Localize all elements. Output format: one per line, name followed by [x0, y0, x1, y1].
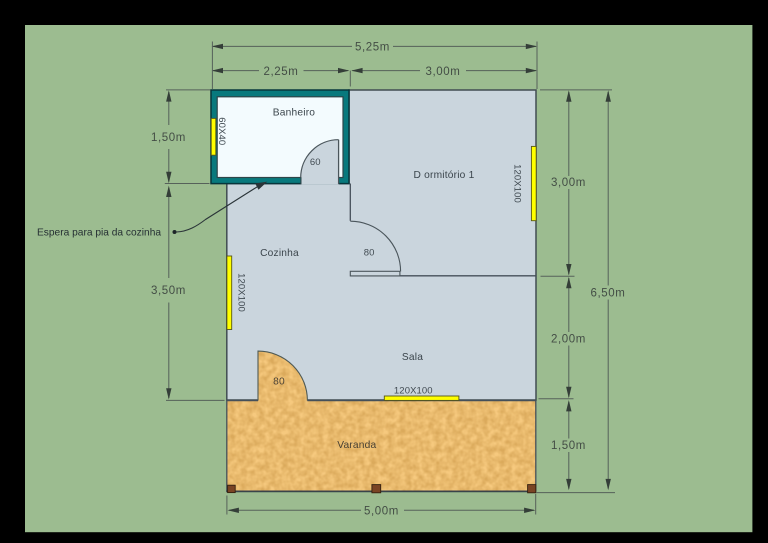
svg-text:1,50m: 1,50m [151, 132, 186, 144]
svg-text:120X100: 120X100 [511, 164, 522, 203]
svg-text:D ormitório 1: D ormitório 1 [414, 170, 475, 181]
svg-text:3,50m: 3,50m [151, 285, 186, 297]
svg-text:80: 80 [364, 248, 375, 259]
svg-text:3,00m: 3,00m [551, 177, 586, 189]
svg-text:Espera para pia da cozinha: Espera para pia da cozinha [37, 227, 161, 238]
svg-text:2,00m: 2,00m [551, 334, 586, 346]
svg-text:5,00m: 5,00m [364, 506, 399, 518]
svg-text:5,25m: 5,25m [355, 42, 390, 54]
svg-text:Cozinha: Cozinha [260, 248, 299, 259]
svg-text:60: 60 [310, 157, 321, 168]
svg-text:Varanda: Varanda [337, 440, 376, 451]
svg-text:1,50m: 1,50m [551, 440, 586, 452]
svg-text:120X100: 120X100 [394, 386, 433, 397]
svg-text:6,50m: 6,50m [591, 288, 626, 300]
svg-text:60X40: 60X40 [216, 117, 227, 145]
svg-text:Banheiro: Banheiro [273, 107, 316, 118]
svg-text:3,00m: 3,00m [426, 66, 461, 78]
svg-text:Sala: Sala [402, 352, 423, 363]
svg-text:2,25m: 2,25m [264, 66, 299, 78]
svg-text:120X100: 120X100 [235, 273, 246, 312]
svg-text:80: 80 [273, 376, 285, 387]
